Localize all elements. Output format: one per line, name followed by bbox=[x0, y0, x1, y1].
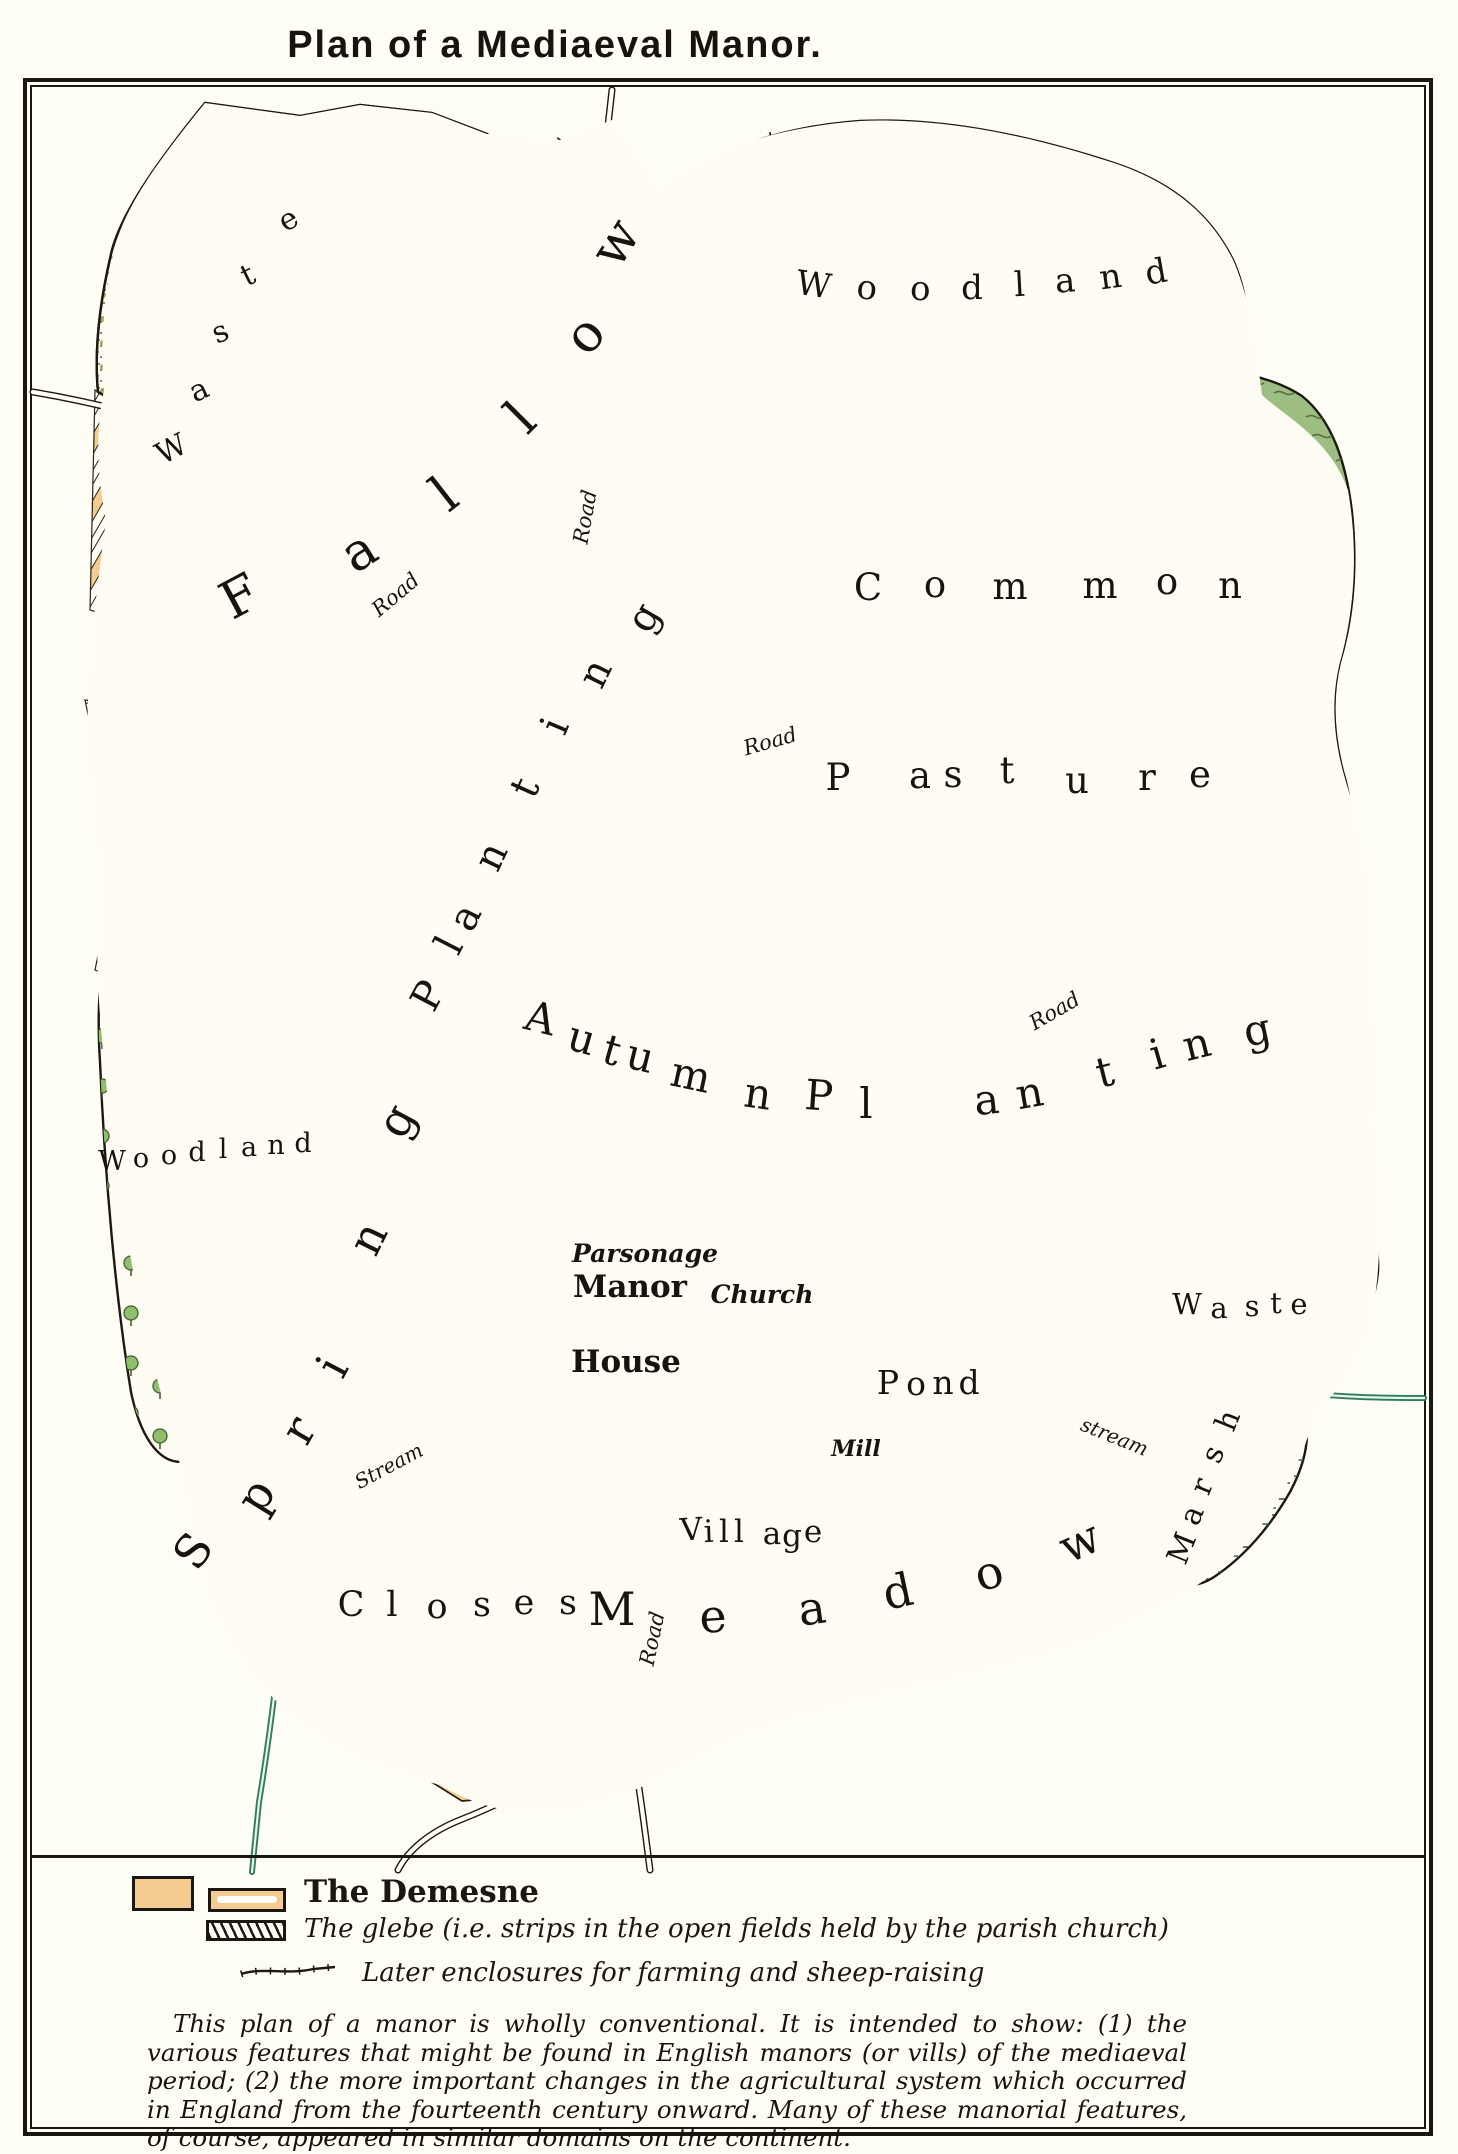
svg-text:m: m bbox=[1082, 564, 1117, 607]
label-mill: Mill bbox=[830, 1436, 880, 1462]
svg-text:d: d bbox=[961, 268, 983, 308]
svg-text:o: o bbox=[426, 1587, 447, 1627]
svg-text:W: W bbox=[793, 263, 833, 307]
svg-text:a: a bbox=[1053, 260, 1077, 302]
caption-note: This plan of a manor is wholly conventio… bbox=[147, 2010, 1187, 2153]
svg-text:n: n bbox=[1218, 564, 1242, 607]
legend-demesne-solid-swatch bbox=[132, 1876, 194, 1911]
svg-text:l: l bbox=[734, 1514, 744, 1550]
svg-text:P: P bbox=[803, 1070, 835, 1121]
svg-text:n: n bbox=[267, 1130, 284, 1161]
svg-text:n: n bbox=[932, 1363, 953, 1402]
svg-text:o: o bbox=[924, 563, 946, 606]
svg-text:e: e bbox=[1290, 1287, 1307, 1321]
legend-item-demesne: The Demesne bbox=[304, 1874, 539, 1910]
svg-text:C: C bbox=[338, 1585, 365, 1625]
svg-text:e: e bbox=[697, 1588, 728, 1644]
svg-text:o: o bbox=[133, 1143, 149, 1174]
svg-text:a: a bbox=[763, 1516, 781, 1552]
svg-text:M: M bbox=[588, 1582, 635, 1636]
svg-text:i: i bbox=[703, 1514, 714, 1550]
manor-map: ✚ ✳ Waste Fallow Woodland Common Pasture… bbox=[32, 87, 1424, 1858]
legend-enclosure-line bbox=[238, 1962, 338, 1980]
legend-glebe-swatch bbox=[206, 1920, 286, 1941]
page-title: Plan of a Mediaeval Manor. bbox=[0, 24, 1110, 67]
legend-demesne-strip-swatch bbox=[208, 1888, 286, 1912]
svg-text:C: C bbox=[854, 566, 882, 609]
label-manor: Manor bbox=[573, 1269, 688, 1305]
svg-text:u: u bbox=[1065, 759, 1089, 802]
svg-text:W: W bbox=[1172, 1287, 1202, 1321]
legend-item-glebe: The glebe (i.e. strips in the open field… bbox=[304, 1914, 1169, 1944]
svg-text:W: W bbox=[98, 1146, 126, 1177]
label-church: Church bbox=[711, 1280, 814, 1309]
svg-text:s: s bbox=[1245, 1289, 1260, 1323]
demesne-strip-white-band bbox=[217, 1896, 277, 1903]
svg-text:a: a bbox=[909, 754, 931, 797]
svg-text:o: o bbox=[855, 267, 879, 309]
svg-text:r: r bbox=[1138, 756, 1156, 799]
svg-text:o: o bbox=[906, 1364, 926, 1403]
svg-text:a: a bbox=[241, 1132, 257, 1163]
svg-text:s: s bbox=[559, 1583, 577, 1623]
svg-text:l: l bbox=[219, 1134, 228, 1165]
svg-text:a: a bbox=[1210, 1291, 1227, 1325]
svg-text:P: P bbox=[877, 1363, 899, 1402]
svg-text:t: t bbox=[1000, 749, 1015, 792]
svg-text:d: d bbox=[188, 1137, 205, 1168]
svg-text:o: o bbox=[161, 1140, 177, 1171]
svg-text:d: d bbox=[958, 1363, 979, 1402]
svg-text:t: t bbox=[1270, 1286, 1282, 1320]
label-house: House bbox=[571, 1344, 681, 1380]
svg-text:s: s bbox=[944, 753, 963, 796]
svg-text:e: e bbox=[514, 1583, 535, 1623]
svg-text:d: d bbox=[294, 1128, 311, 1159]
svg-text:g: g bbox=[782, 1518, 802, 1554]
svg-text:a: a bbox=[971, 1074, 1001, 1125]
svg-text:o: o bbox=[909, 269, 931, 310]
svg-text:s: s bbox=[473, 1585, 491, 1625]
svg-text:e: e bbox=[1189, 753, 1211, 796]
svg-text:P: P bbox=[826, 756, 851, 799]
svg-text:o: o bbox=[1156, 560, 1178, 603]
svg-text:l: l bbox=[386, 1585, 397, 1625]
svg-text:e: e bbox=[804, 1514, 822, 1550]
svg-text:l: l bbox=[719, 1514, 729, 1550]
label-parsonage: Parsonage bbox=[571, 1239, 718, 1268]
svg-text:l: l bbox=[859, 1079, 872, 1128]
svg-text:V: V bbox=[678, 1511, 704, 1549]
legend: The Demesne The glebe (i.e. strips in th… bbox=[32, 1858, 1424, 2124]
svg-text:l: l bbox=[1013, 265, 1026, 306]
svg-text:m: m bbox=[992, 565, 1027, 608]
map-frame: ✚ ✳ Waste Fallow Woodland Common Pasture… bbox=[30, 85, 1426, 2129]
legend-item-enclosures: Later enclosures for farming and sheep-r… bbox=[362, 1958, 984, 1988]
